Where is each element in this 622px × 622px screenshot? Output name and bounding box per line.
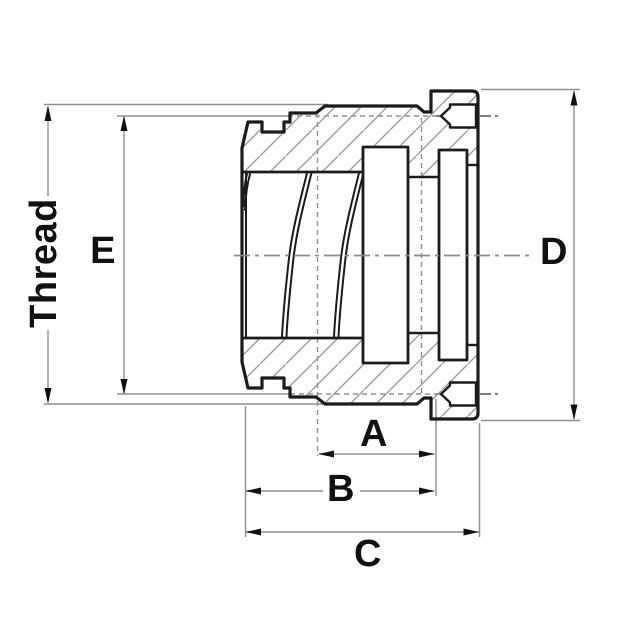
technical-drawing-canvas: Thread E D A B C xyxy=(0,0,622,622)
dim-label-a: A xyxy=(360,415,388,453)
dim-label-b: B xyxy=(327,470,355,508)
dim-label-e: E xyxy=(90,232,116,270)
c-arrow-left xyxy=(246,529,262,536)
a-arrow-right xyxy=(419,451,435,458)
thread-arrow-up xyxy=(45,106,52,122)
dim-label-thread: Thread xyxy=(25,198,63,328)
a-arrow-left xyxy=(319,451,335,458)
d-arrow-up xyxy=(571,90,578,106)
thread-arrow-down xyxy=(45,388,52,404)
dim-label-d: D xyxy=(540,233,568,271)
dim-label-c: C xyxy=(354,535,382,573)
c-arrow-right xyxy=(464,529,480,536)
e-arrow-up xyxy=(121,116,128,132)
coupling-cross-section-diagram xyxy=(0,0,622,622)
e-arrow-down xyxy=(121,379,128,395)
b-arrow-left xyxy=(246,488,262,495)
d-arrow-down xyxy=(571,405,578,421)
b-arrow-right xyxy=(419,488,435,495)
